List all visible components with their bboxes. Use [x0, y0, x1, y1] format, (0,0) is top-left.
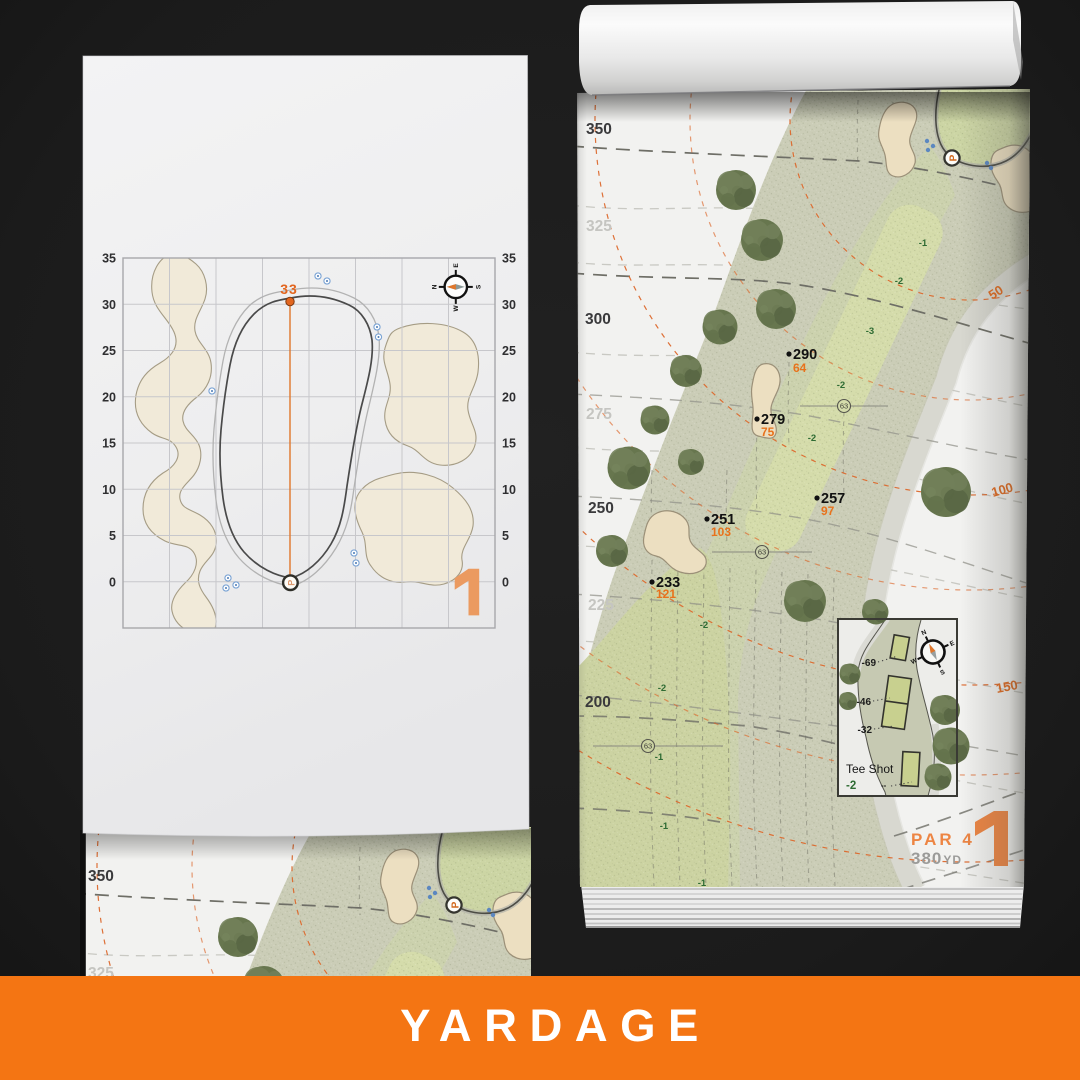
svg-text:33: 33 [280, 281, 298, 297]
svg-text:5: 5 [109, 529, 116, 543]
svg-text:30: 30 [102, 298, 116, 312]
svg-text:35: 35 [502, 252, 516, 266]
svg-text:25: 25 [502, 344, 516, 358]
svg-text:10: 10 [102, 483, 116, 497]
svg-text:10: 10 [502, 483, 516, 497]
svg-text:15: 15 [502, 437, 516, 451]
svg-text:5: 5 [502, 529, 509, 543]
svg-text:20: 20 [102, 390, 116, 404]
svg-text:30: 30 [502, 298, 516, 312]
svg-text:YARDAGE: YARDAGE [400, 1000, 711, 1051]
svg-text:15: 15 [102, 437, 116, 451]
svg-text:35: 35 [102, 252, 116, 266]
svg-text:20: 20 [502, 390, 516, 404]
svg-text:P: P [287, 580, 297, 586]
svg-text:25: 25 [102, 344, 116, 358]
svg-text:0: 0 [109, 575, 116, 589]
svg-text:0: 0 [502, 575, 509, 589]
